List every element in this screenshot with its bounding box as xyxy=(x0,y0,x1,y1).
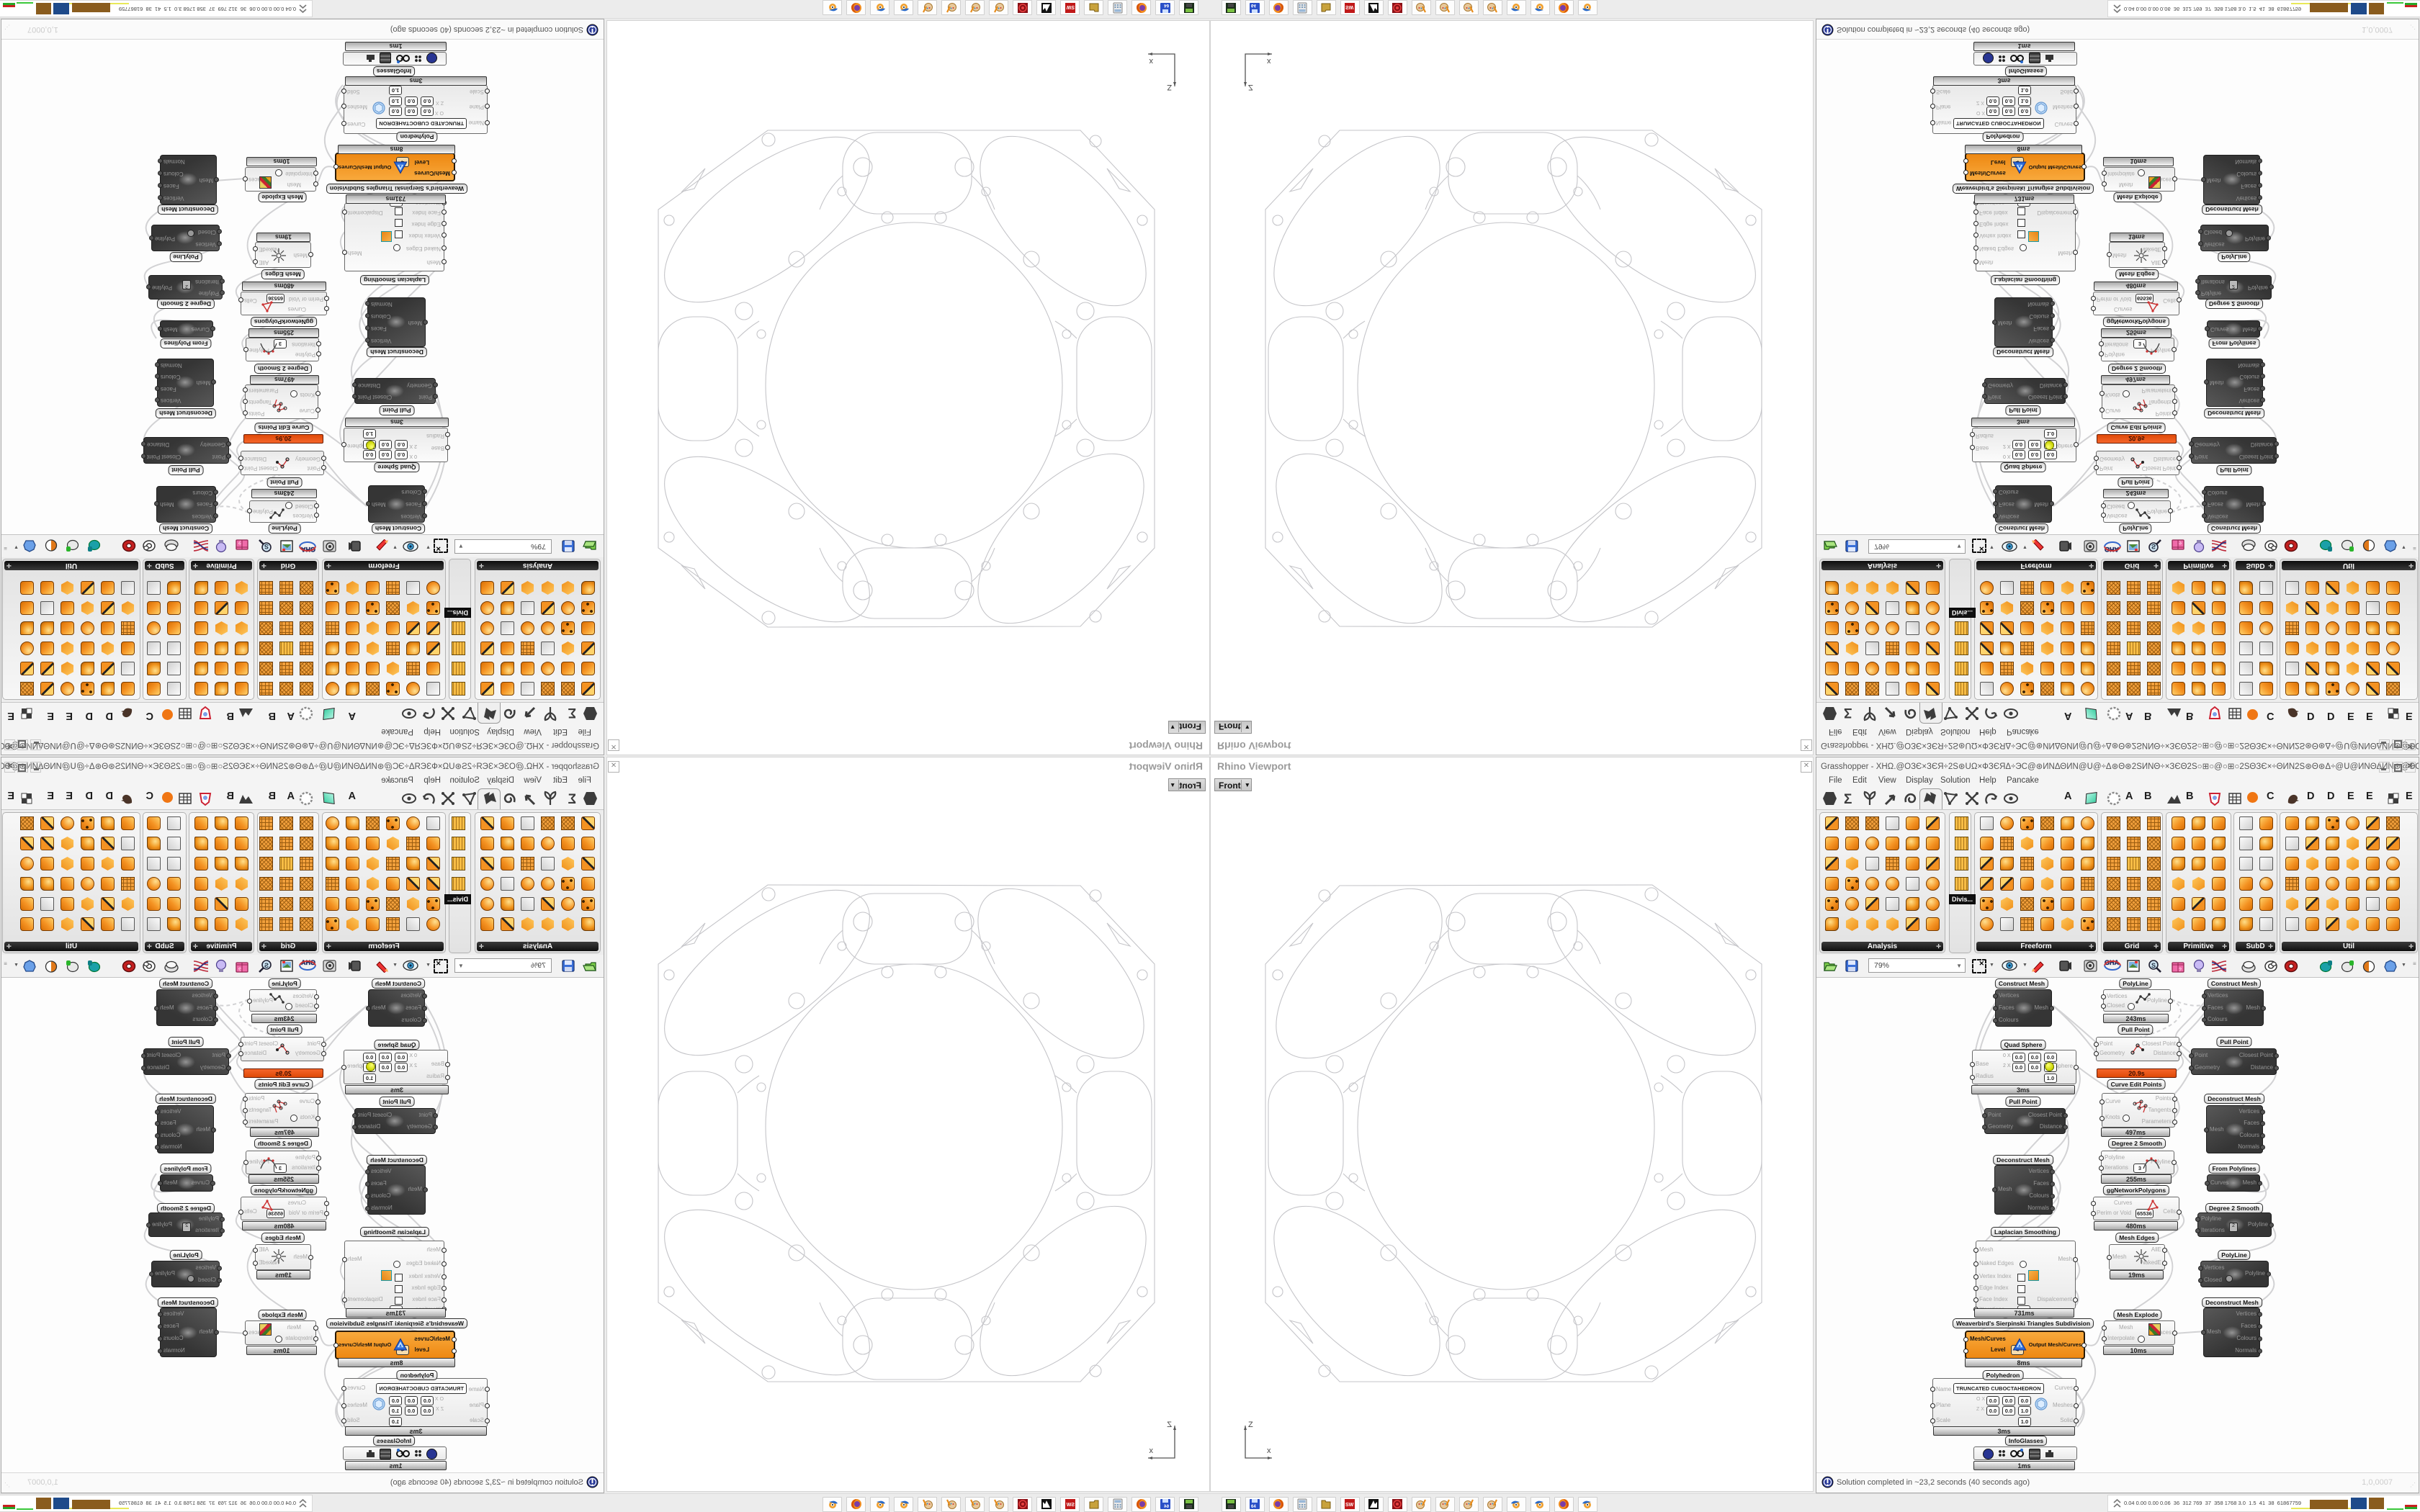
svg-text:SW: SW xyxy=(1066,4,1075,9)
svg-text:x: x xyxy=(1267,57,1271,66)
svg-text:64: 64 xyxy=(1164,3,1169,7)
svg-text:64: 64 xyxy=(1251,3,1256,7)
svg-text:SW: SW xyxy=(1345,4,1354,9)
svg-text:64: 64 xyxy=(1164,1505,1169,1509)
svg-text:SW: SW xyxy=(1345,1503,1354,1508)
svg-text:64: 64 xyxy=(1251,1505,1256,1509)
svg-text:x: x xyxy=(1267,1446,1271,1455)
svg-text:Z: Z xyxy=(1248,1421,1253,1429)
svg-text:x: x xyxy=(1149,1446,1153,1455)
svg-text:Z: Z xyxy=(1167,1421,1172,1429)
svg-text:x: x xyxy=(1149,57,1153,66)
svg-text:Z: Z xyxy=(1167,83,1172,91)
svg-text:Z: Z xyxy=(1248,83,1253,91)
svg-text:SW: SW xyxy=(1066,1503,1075,1508)
